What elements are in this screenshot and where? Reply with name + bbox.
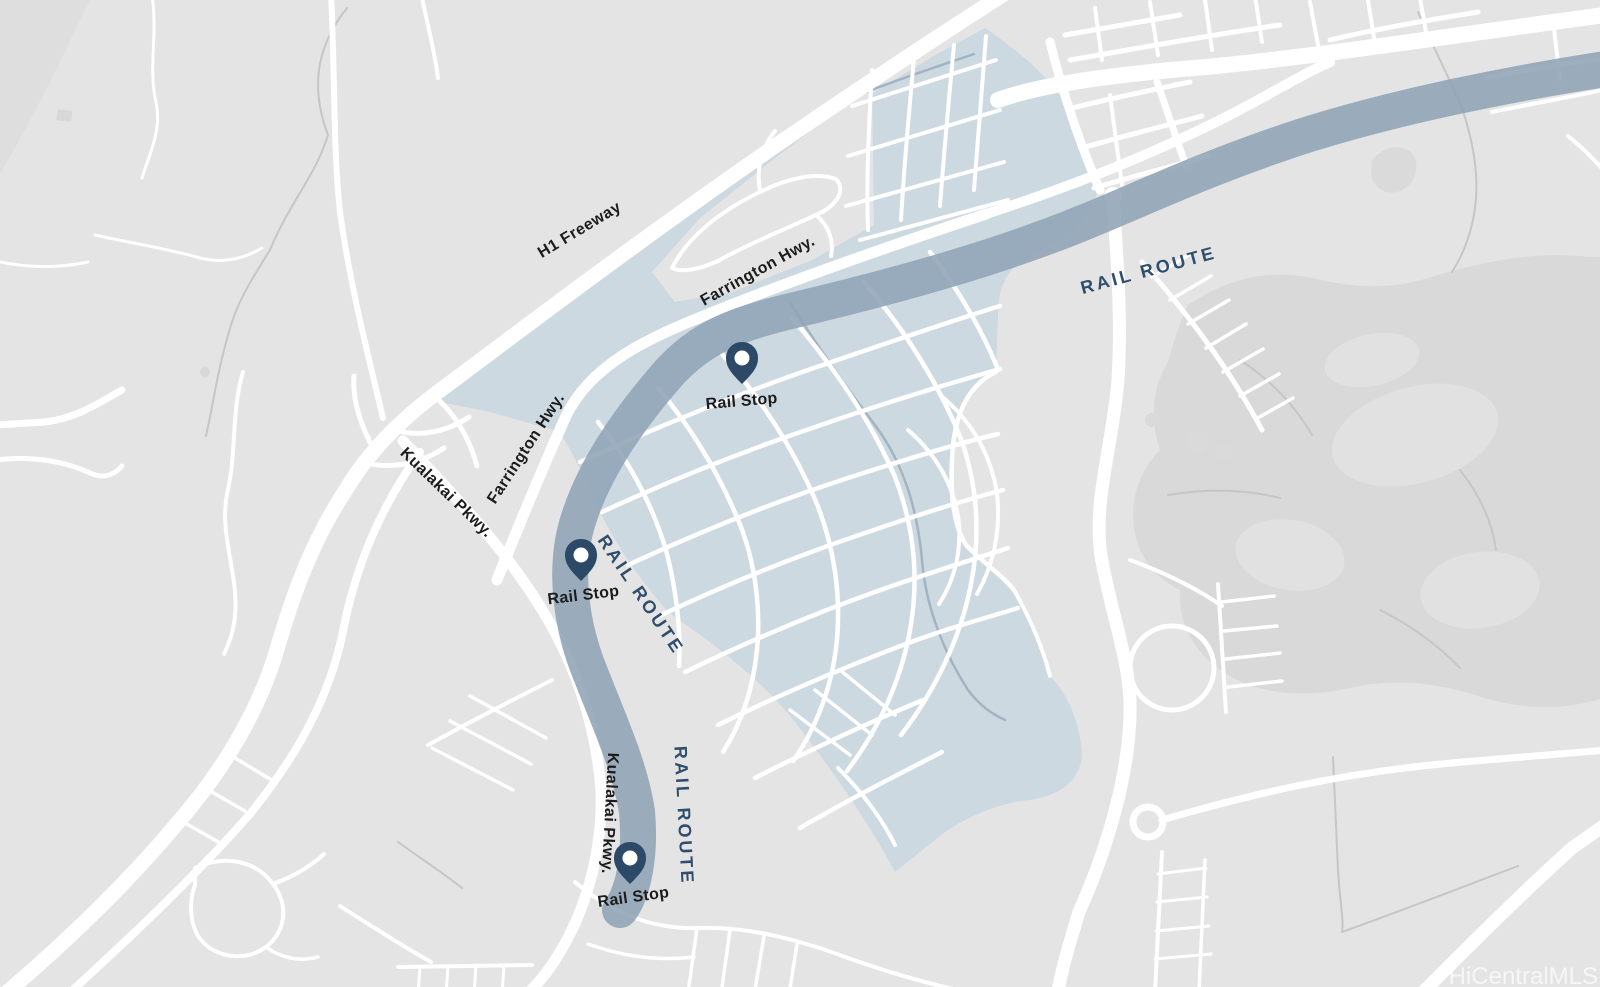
- rail-stop-pin-dot: [735, 351, 750, 366]
- watermark: HiCentralMLS: [1449, 963, 1598, 987]
- rail-stop-pin-dot: [623, 851, 638, 866]
- map-canvas[interactable]: H1 Freeway Farrington Hwy. Farrington Hw…: [0, 0, 1600, 987]
- rail-stop-pin-dot: [574, 548, 589, 563]
